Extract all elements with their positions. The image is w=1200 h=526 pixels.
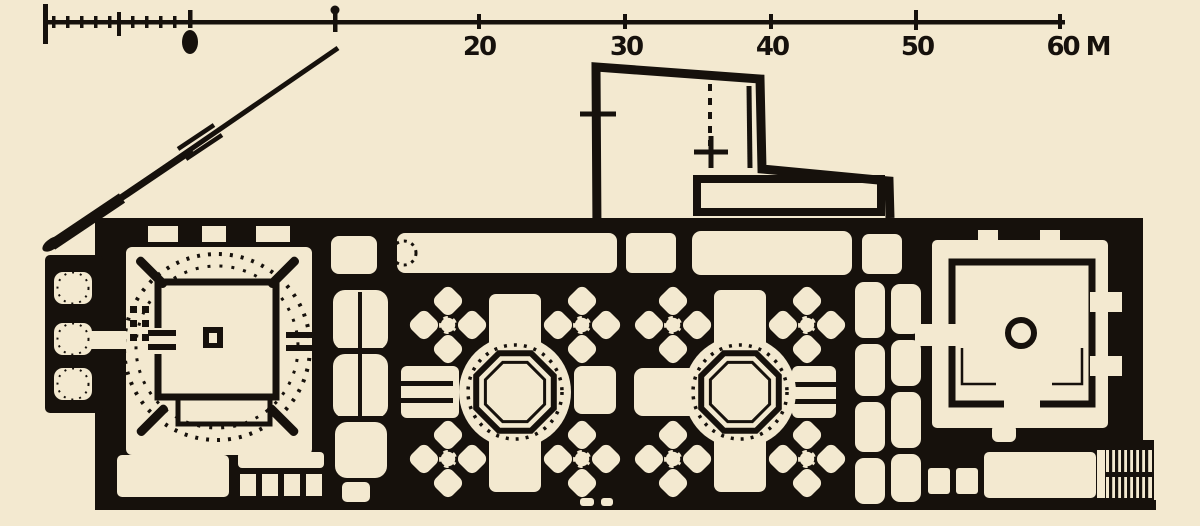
scale-label-30: 30	[610, 32, 642, 62]
floor-plan-page: 20 30 40 50 60 M	[0, 0, 1200, 526]
scale-ten-tick	[331, 6, 340, 33]
scale-label-60m: 60 M	[1046, 32, 1109, 62]
left-domed-hall	[117, 226, 324, 497]
upper-annex-outline	[580, 67, 890, 232]
scale-label-40: 40	[756, 32, 788, 62]
scale-label-20: 20	[463, 32, 495, 62]
staircase-hatching	[1088, 440, 1156, 510]
floor-plan-drawing	[0, 0, 1200, 526]
scale-zero-mark	[182, 10, 198, 54]
main-block	[45, 218, 1156, 510]
scale-label-50: 50	[901, 32, 933, 62]
